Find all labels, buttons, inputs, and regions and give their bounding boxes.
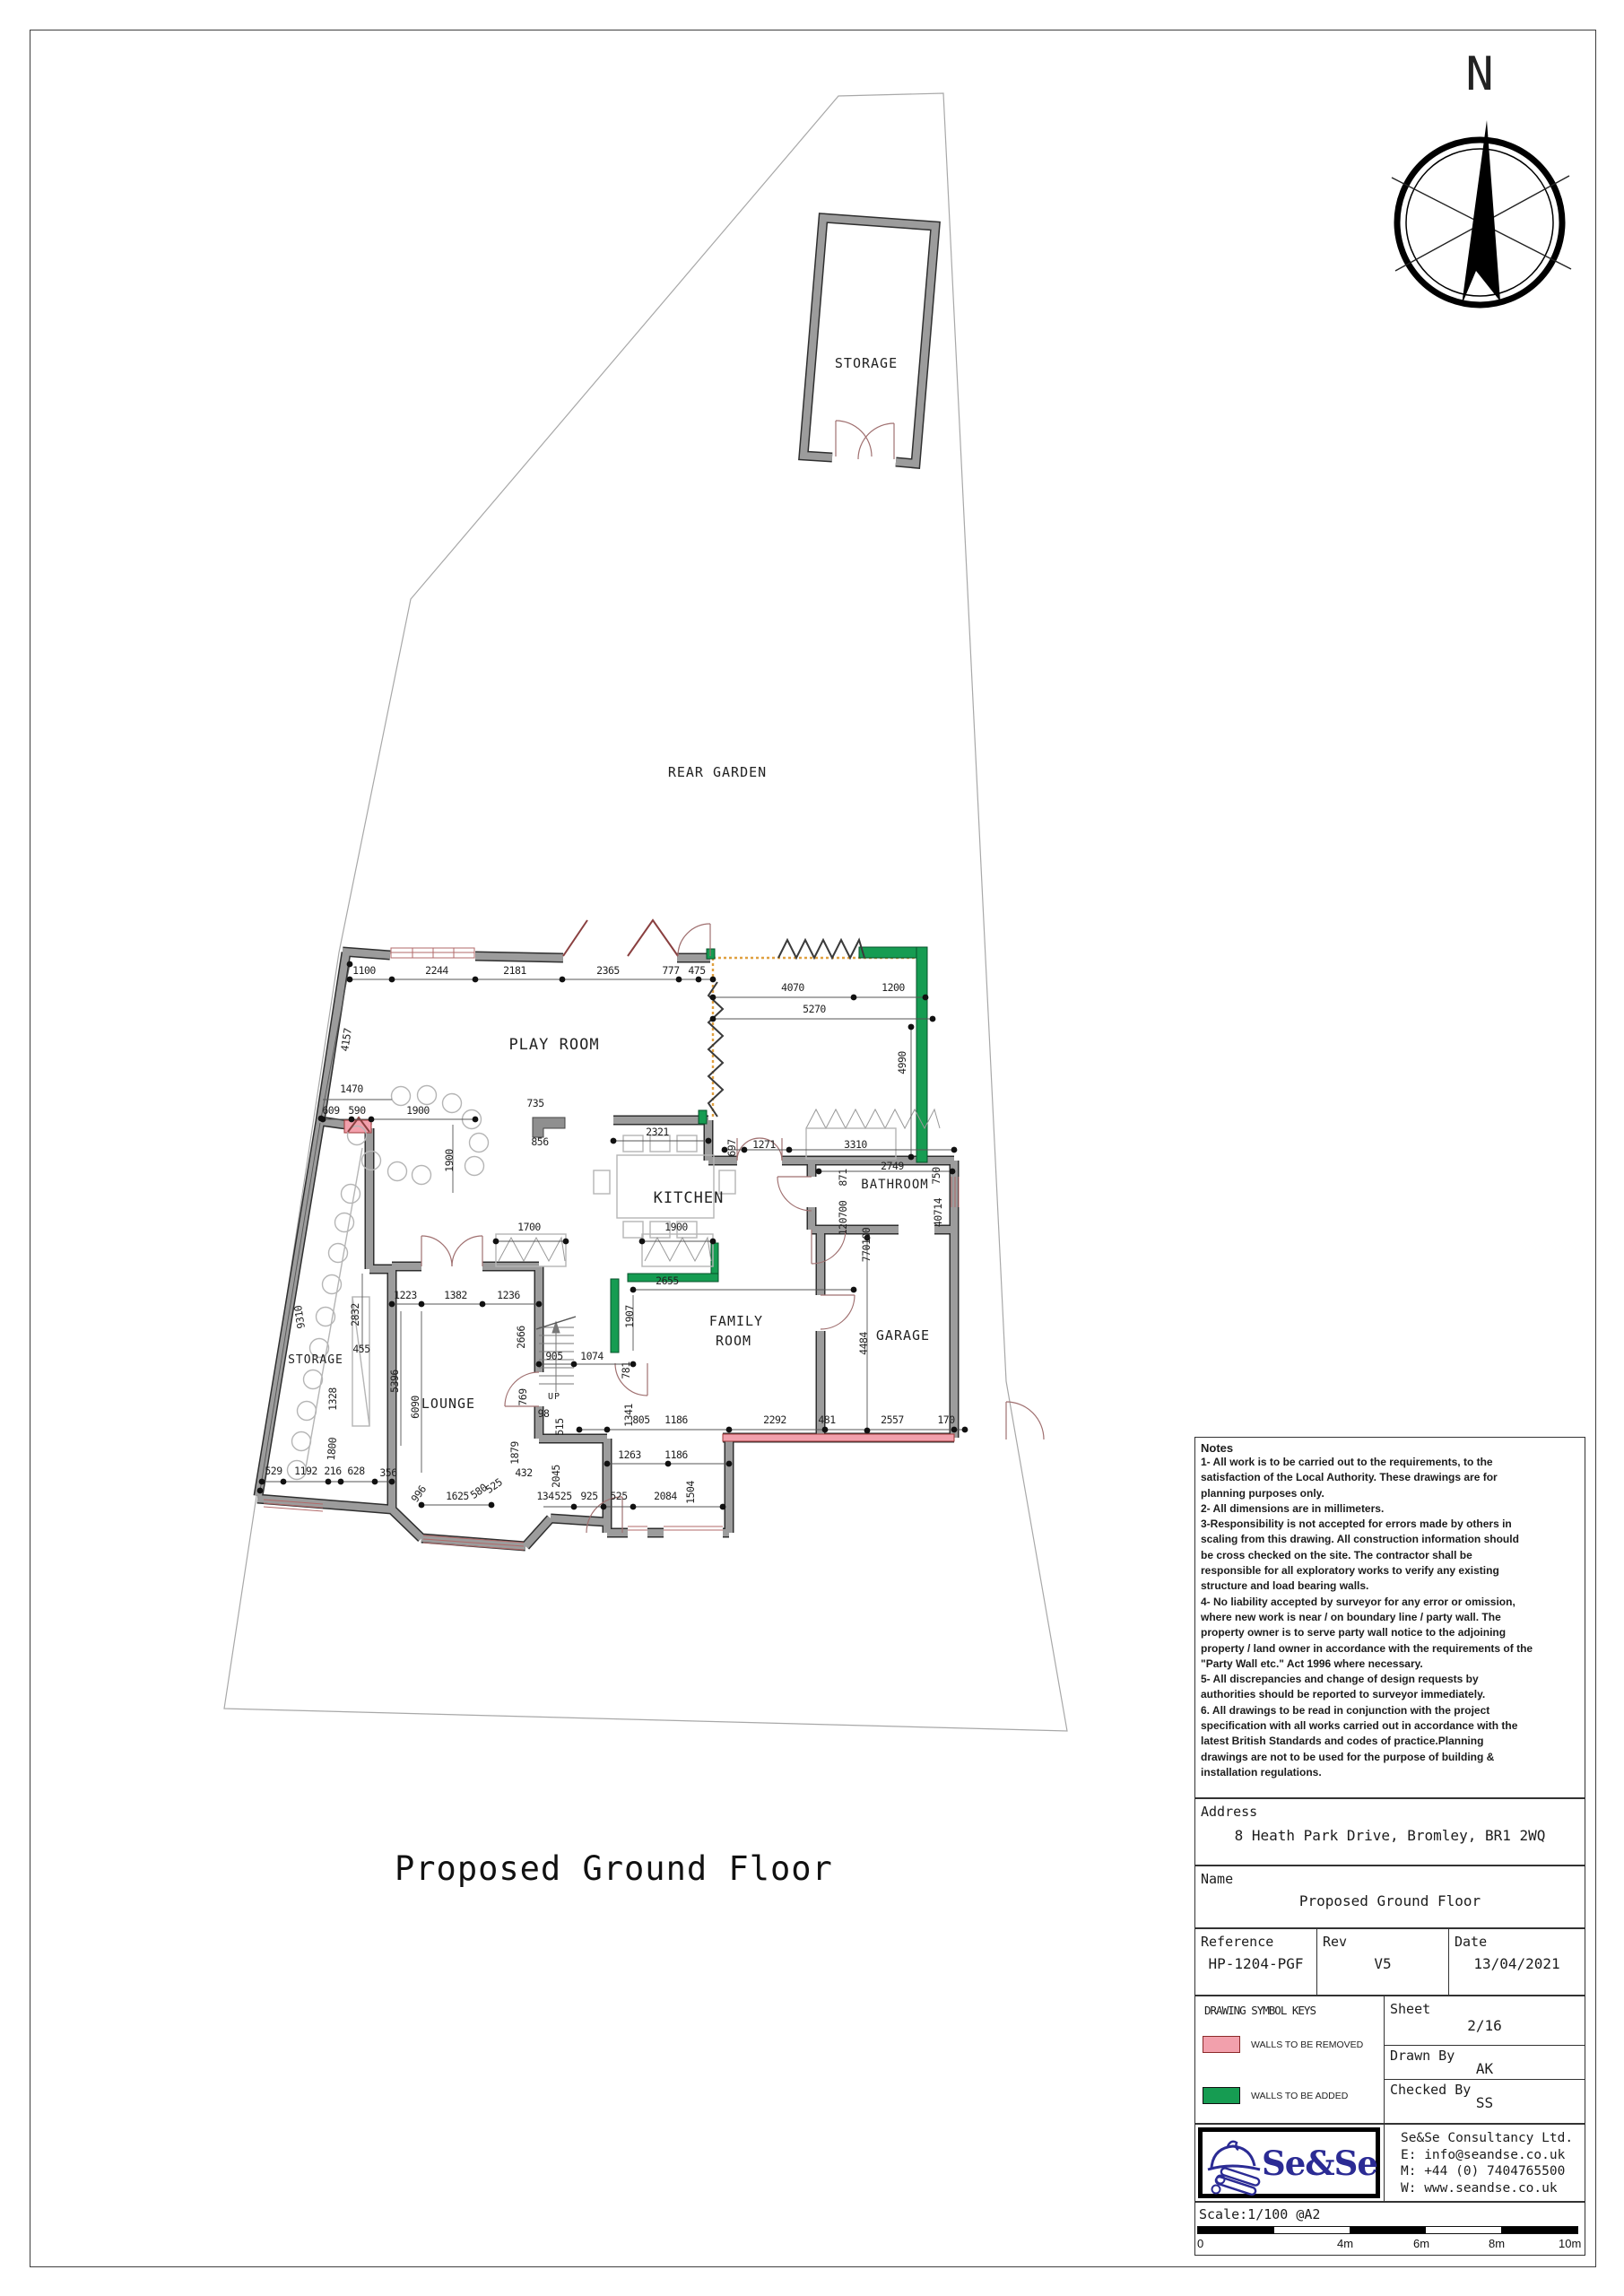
walls-removed-label: WALLS TO BE REMOVED [1251, 2039, 1363, 2050]
svg-text:871: 871 [837, 1169, 849, 1187]
date-label: Date [1449, 1929, 1585, 1950]
svg-text:455: 455 [352, 1343, 369, 1355]
svg-text:1900: 1900 [406, 1104, 430, 1117]
svg-text:1504: 1504 [684, 1481, 697, 1504]
rev-cell: Rev V5 [1317, 1929, 1449, 1995]
svg-text:475: 475 [688, 964, 705, 977]
svg-text:4990: 4990 [896, 1051, 908, 1074]
storage-outbuilding [803, 218, 935, 464]
svg-text:PLAY ROOM: PLAY ROOM [508, 1036, 599, 1054]
room-labels: REAR GARDENSTORAGEPLAY ROOMKITCHENBATHRO… [288, 355, 930, 1412]
legend-item-removed: WALLS TO BE REMOVED [1203, 2036, 1363, 2053]
svg-text:2557: 2557 [881, 1413, 904, 1426]
compass-north-label: N [1465, 48, 1493, 101]
svg-text:770100: 770100 [860, 1227, 873, 1262]
rev-label: Rev [1317, 1929, 1448, 1950]
svg-text:98: 98 [538, 1407, 550, 1420]
svg-text:1907: 1907 [623, 1305, 636, 1328]
company-logo: Se&Se [1195, 2125, 1385, 2201]
logo-frame: Se&Se [1198, 2127, 1380, 2198]
svg-text:525: 525 [554, 1490, 571, 1502]
svg-text:134: 134 [536, 1490, 554, 1502]
company-contact: Se&Se Consultancy Ltd. E: info@seandse.c… [1385, 2125, 1585, 2201]
notes-body: 1- All work is to be carried out to the … [1195, 1455, 1585, 1780]
svg-text:925: 925 [580, 1490, 597, 1502]
svg-text:STORAGE: STORAGE [835, 355, 898, 371]
reference-cell: Reference HP-1204-PGF [1195, 1929, 1317, 1995]
svg-text:2321: 2321 [646, 1126, 669, 1138]
svg-text:905: 905 [545, 1350, 562, 1362]
svg-text:BATHROOM: BATHROOM [861, 1178, 928, 1192]
walls-added-label: WALLS TO BE ADDED [1251, 2091, 1348, 2101]
svg-text:2749: 2749 [881, 1160, 904, 1172]
svg-text:529: 529 [265, 1465, 282, 1477]
svg-text:697: 697 [725, 1139, 738, 1157]
svg-text:9310: 9310 [291, 1304, 308, 1329]
date-value: 13/04/2021 [1449, 1955, 1585, 1972]
svg-text:3310: 3310 [844, 1138, 867, 1151]
date-cell: Date 13/04/2021 [1449, 1929, 1585, 1995]
svg-text:1263: 1263 [618, 1448, 641, 1461]
svg-text:STORAGE: STORAGE [288, 1353, 343, 1367]
address-label: Address [1195, 1799, 1585, 1820]
scale-label-4m: 4m [1337, 2237, 1353, 2250]
svg-text:LOUNGE: LOUNGE [421, 1396, 475, 1412]
svg-text:216: 216 [324, 1465, 342, 1477]
logo-text: Se&Se [1262, 2144, 1377, 2183]
svg-text:609: 609 [322, 1104, 340, 1117]
company-name: Se&Se Consultancy Ltd. [1401, 2130, 1585, 2147]
company-mobile: M: +44 (0) 7404765500 [1401, 2163, 1585, 2180]
scale-box: Scale:1/100 @A2 0 4m 6m 8m 10m [1194, 2202, 1585, 2256]
drawn-by-cell: Drawn By AK [1385, 2046, 1585, 2080]
svg-text:1186: 1186 [664, 1448, 688, 1461]
svg-text:170: 170 [937, 1413, 955, 1426]
svg-text:2666: 2666 [515, 1326, 527, 1349]
svg-text:1382: 1382 [444, 1289, 467, 1301]
svg-text:996: 996 [408, 1483, 429, 1504]
svg-text:REAR GARDEN: REAR GARDEN [668, 764, 767, 780]
company-web: W: www.seandse.co.uk [1401, 2180, 1585, 2197]
reference-value: HP-1204-PGF [1195, 1955, 1316, 1972]
reference-row: Reference HP-1204-PGF Rev V5 Date 13/04/… [1194, 1928, 1585, 1996]
svg-text:1700: 1700 [517, 1221, 541, 1233]
svg-text:1271: 1271 [752, 1138, 776, 1151]
name-box: Name Proposed Ground Floor [1194, 1865, 1585, 1928]
svg-text:781: 781 [620, 1361, 632, 1379]
svg-text:1879: 1879 [508, 1441, 521, 1465]
svg-text:2045: 2045 [550, 1465, 562, 1488]
company-row: Se&Se Se&Se Consultancy Ltd. E: info@sea… [1194, 2124, 1585, 2202]
scale-bar [1197, 2226, 1578, 2234]
svg-text:481: 481 [818, 1413, 836, 1426]
site-boundary [224, 93, 1067, 1731]
address-box: Address 8 Heath Park Drive, Bromley, BR1… [1194, 1798, 1585, 1865]
svg-text:1470: 1470 [340, 1083, 363, 1095]
furniture [288, 1086, 897, 1480]
svg-text:515: 515 [553, 1418, 566, 1435]
sheet-label: Sheet [1385, 1996, 1585, 2017]
svg-text:1074: 1074 [580, 1350, 604, 1362]
legend-item-added: WALLS TO BE ADDED [1203, 2087, 1348, 2104]
sheet-info-column: Sheet 2/16 Drawn By AK Checked By SS [1385, 1996, 1585, 2123]
symbol-keys-title: DRAWING SYMBOL KEYS [1195, 1996, 1384, 2017]
svg-text:4070: 4070 [781, 981, 804, 994]
name-value: Proposed Ground Floor [1195, 1892, 1585, 1909]
svg-text:ROOM: ROOM [716, 1333, 751, 1349]
svg-text:1800: 1800 [325, 1437, 339, 1461]
svg-text:40714: 40714 [932, 1197, 944, 1227]
svg-text:KITCHEN: KITCHEN [654, 1189, 725, 1207]
svg-text:525: 525 [610, 1490, 627, 1502]
svg-text:735: 735 [526, 1097, 543, 1109]
scale-label-6m: 6m [1413, 2237, 1429, 2250]
svg-text:FAMILY: FAMILY [709, 1313, 763, 1329]
svg-text:2084: 2084 [654, 1490, 677, 1502]
scale-text: Scale:1/100 @A2 [1195, 2203, 1585, 2222]
scale-label-0: 0 [1197, 2237, 1203, 2250]
notes-title: Notes [1195, 1438, 1585, 1455]
svg-text:1186: 1186 [664, 1413, 688, 1426]
svg-text:750: 750 [930, 1167, 942, 1185]
drawing-sheet: N [0, 0, 1624, 2296]
zigzag-break-symbols [708, 940, 940, 1128]
svg-text:UP: UP [548, 1392, 560, 1402]
svg-text:1200: 1200 [881, 981, 905, 994]
symbol-keys-row: DRAWING SYMBOL KEYS WALLS TO BE REMOVED … [1194, 1996, 1585, 2124]
scale-label-10m: 10m [1559, 2237, 1581, 2250]
svg-text:5396: 5396 [388, 1370, 401, 1393]
svg-text:GARAGE: GARAGE [876, 1327, 930, 1344]
svg-text:4157: 4157 [338, 1027, 354, 1052]
svg-text:1900: 1900 [664, 1221, 688, 1233]
svg-text:1328: 1328 [326, 1387, 339, 1411]
svg-text:5270: 5270 [803, 1003, 826, 1015]
hardhat-pipes-icon [1204, 2137, 1267, 2196]
reference-label: Reference [1195, 1929, 1316, 1950]
svg-text:805: 805 [632, 1413, 649, 1426]
walls-added-swatch [1203, 2087, 1240, 2104]
svg-text:356: 356 [379, 1466, 397, 1479]
name-label: Name [1195, 1866, 1585, 1887]
svg-text:2832: 2832 [349, 1303, 361, 1326]
svg-text:856: 856 [531, 1135, 549, 1148]
sheet-value: 2/16 [1385, 2017, 1585, 2034]
svg-text:2292: 2292 [763, 1413, 786, 1426]
svg-text:2244: 2244 [425, 964, 448, 977]
svg-text:777: 777 [662, 964, 680, 977]
svg-text:769: 769 [517, 1388, 529, 1406]
drawing-symbol-keys: DRAWING SYMBOL KEYS WALLS TO BE REMOVED … [1195, 1996, 1385, 2123]
svg-text:120700: 120700 [837, 1200, 849, 1235]
svg-text:432: 432 [515, 1466, 532, 1479]
company-email: E: info@seandse.co.uk [1401, 2147, 1585, 2164]
sheet-cell: Sheet 2/16 [1385, 1996, 1585, 2046]
svg-text:2655: 2655 [656, 1274, 679, 1287]
address-value: 8 Heath Park Drive, Bromley, BR1 2WQ [1195, 1827, 1585, 1844]
svg-text:1100: 1100 [352, 964, 376, 977]
svg-text:2181: 2181 [503, 964, 526, 977]
notes-box: Notes 1- All work is to be carried out t… [1194, 1437, 1585, 1798]
checked-by-cell: Checked By SS [1385, 2080, 1585, 2123]
svg-text:1236: 1236 [497, 1289, 520, 1301]
svg-text:1900: 1900 [443, 1149, 456, 1172]
svg-text:1192: 1192 [294, 1465, 317, 1477]
house-walls [257, 952, 954, 1546]
scale-label-8m: 8m [1489, 2237, 1505, 2250]
drawing-title: Proposed Ground Floor [395, 1849, 861, 1888]
walls-removed-swatch [1203, 2036, 1240, 2053]
rev-value: V5 [1317, 1955, 1448, 1972]
svg-text:1625: 1625 [446, 1490, 469, 1502]
svg-text:2365: 2365 [596, 964, 620, 977]
svg-text:6090: 6090 [409, 1396, 421, 1419]
svg-text:1223: 1223 [394, 1289, 417, 1301]
svg-text:628: 628 [347, 1465, 365, 1477]
compass-icon: N [1392, 48, 1571, 305]
svg-text:590: 590 [348, 1104, 366, 1117]
svg-text:4484: 4484 [857, 1332, 870, 1355]
